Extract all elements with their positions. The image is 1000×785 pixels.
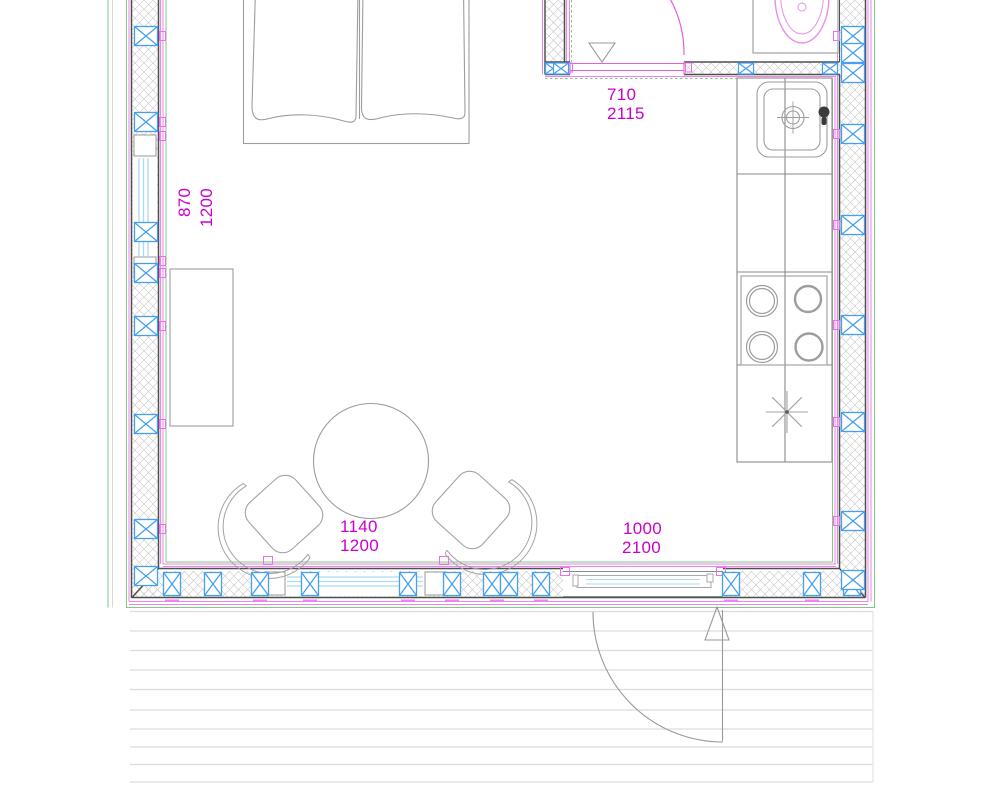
door-leaf-closed	[577, 576, 711, 588]
desk	[170, 269, 233, 426]
entrance-door	[561, 568, 730, 743]
dim-bathroom-door-height: 2115	[607, 104, 645, 123]
left-wall-window	[133, 135, 158, 278]
door-swing-arc	[666, 0, 684, 55]
vanity-basin	[753, 0, 838, 53]
dim-entrance-door-width: 1000	[623, 519, 662, 538]
kitchen-counter	[737, 78, 832, 462]
dim-bottom-window-width: 1140	[340, 517, 378, 536]
dim-left-window-width: 870	[175, 188, 194, 217]
light-symbol-icon	[766, 391, 808, 433]
round-table	[314, 404, 429, 519]
deck-boards	[130, 612, 873, 783]
dim-bathroom-door-width: 710	[607, 85, 636, 104]
tap-knob-icon	[819, 107, 830, 118]
bathroom-door	[567, 0, 692, 75]
bathroom-marker-triangle-icon	[589, 43, 615, 62]
dim-entrance-door-height: 2100	[622, 538, 661, 557]
dim-bottom-window-sill: 1200	[340, 536, 379, 555]
floor-plan-canvas: 870 1200 710 2115 1140 1200 1000 2100	[0, 0, 1000, 785]
dim-left-window-sill: 1200	[197, 188, 216, 227]
bed	[244, 0, 470, 144]
